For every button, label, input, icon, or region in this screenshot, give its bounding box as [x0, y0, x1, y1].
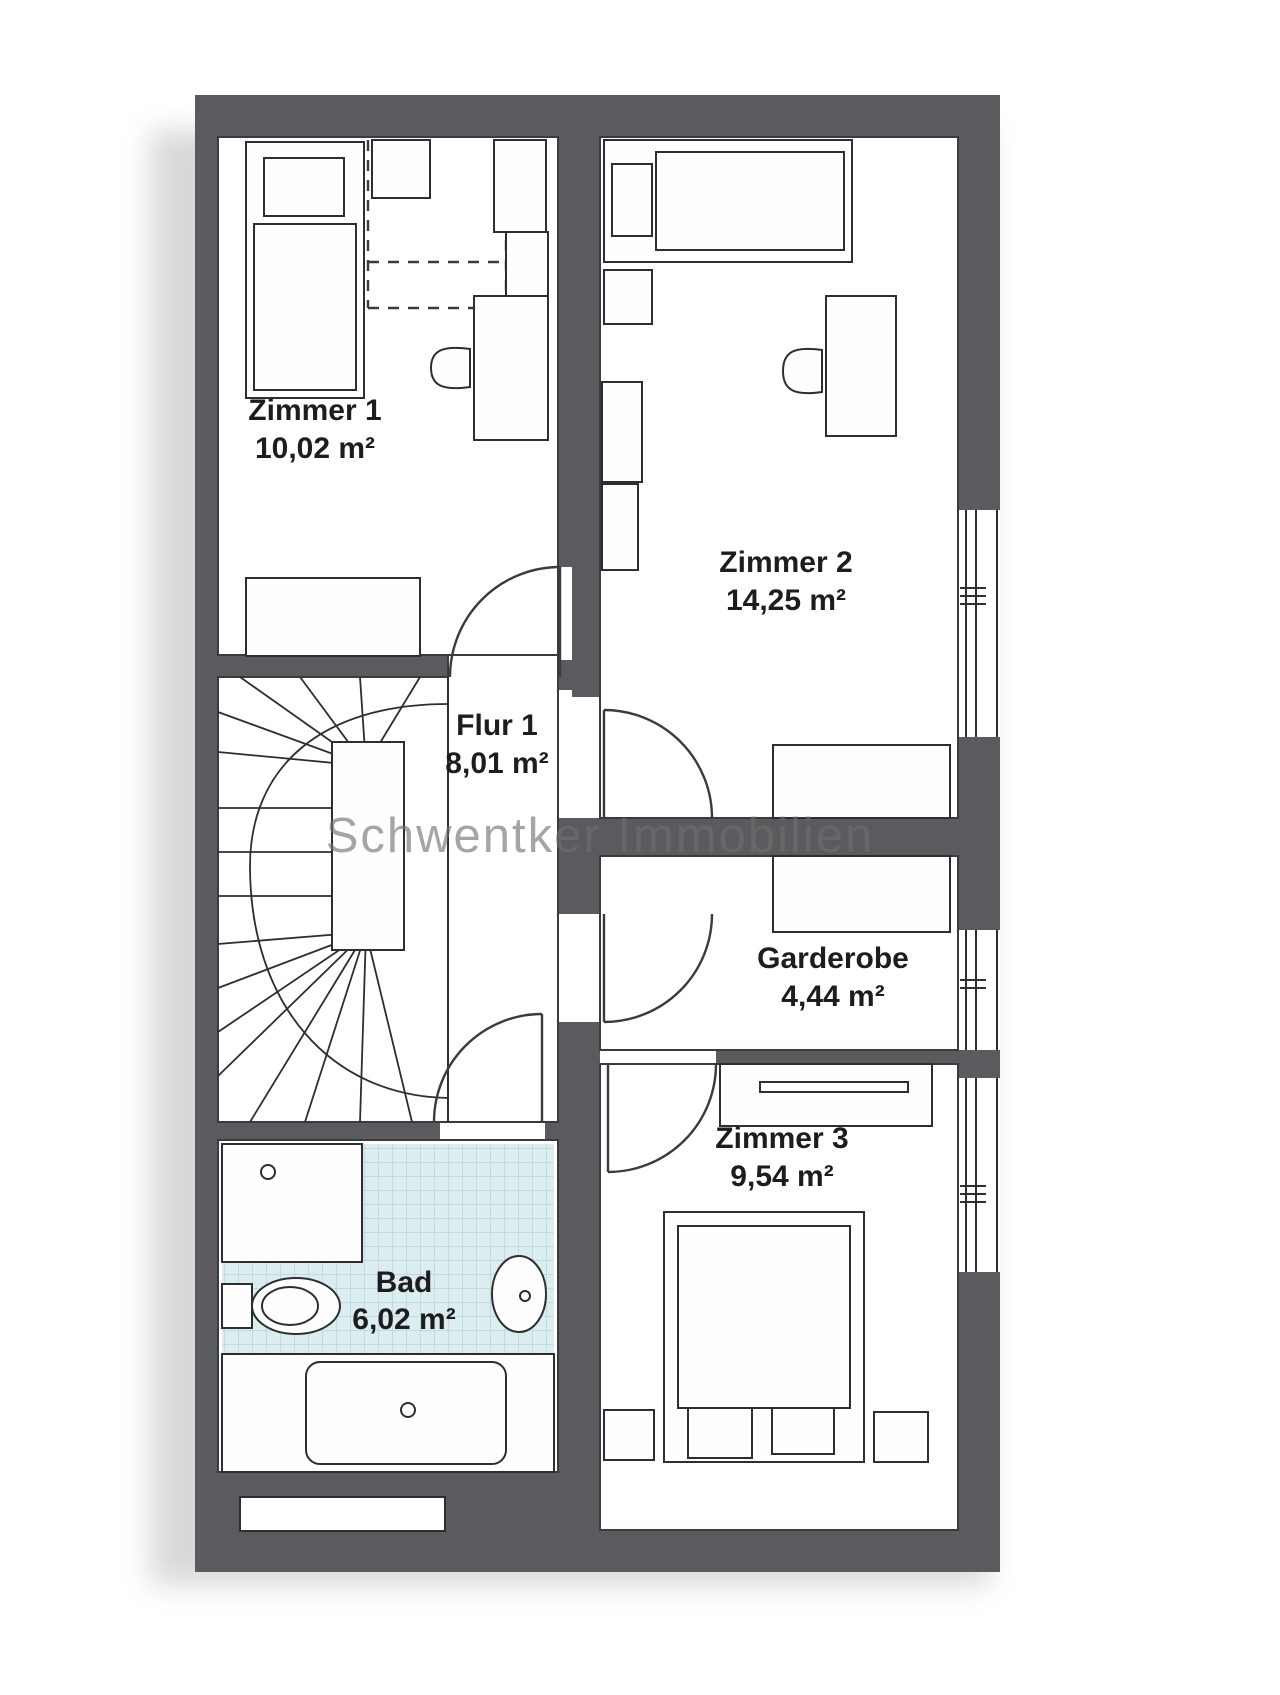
- label-zimmer2-name: Zimmer 2: [719, 546, 852, 579]
- bed-pillow-icon: [612, 164, 652, 236]
- cabinet-icon: [372, 140, 430, 198]
- wall-right-small-pier: [958, 1050, 1000, 1078]
- wall-spine-upper: [558, 137, 600, 567]
- cabinet-icon: [494, 140, 546, 232]
- bed-pillow-icon: [264, 158, 344, 216]
- wall-top: [195, 95, 1000, 137]
- bed-mattress-icon: [678, 1226, 850, 1408]
- wall-zimmer1-stairs: [218, 655, 448, 677]
- wall-right-upper: [958, 95, 1000, 510]
- desk-icon: [826, 296, 896, 436]
- chair-icon: [783, 349, 822, 393]
- wall-bad-bottom: [218, 1472, 558, 1488]
- shelf-icon: [602, 484, 638, 570]
- chair-icon: [431, 348, 470, 388]
- dresser-icon: [773, 745, 950, 818]
- wall-bad-top: [218, 1122, 440, 1140]
- sink-icon: [492, 1256, 546, 1332]
- wardrobe-icon: [773, 856, 950, 932]
- wall-bottom-right: [600, 1530, 1000, 1572]
- shower-icon: [222, 1144, 362, 1262]
- bed-pillow-icon: [772, 1408, 834, 1454]
- wall-spine-mid: [558, 856, 600, 914]
- label-flur1-area: 8,01 m²: [445, 747, 548, 780]
- cabinet-icon: [506, 232, 548, 298]
- label-zimmer3-area: 9,54 m²: [730, 1160, 833, 1193]
- wall-spine-door-jamb: [572, 567, 600, 697]
- floor-plan-page: Zimmer 1 10,02 m² Zimmer 2 14,25 m² Flur…: [0, 0, 1280, 1695]
- label-flur1-name: Flur 1: [456, 709, 538, 742]
- wall-right-lower: [958, 1272, 1000, 1572]
- label-zimmer3-name: Zimmer 3: [715, 1122, 848, 1155]
- sideboard-icon: [246, 578, 420, 656]
- wall-garderobe-zimmer3: [716, 1050, 958, 1064]
- label-bad-name: Bad: [376, 1266, 433, 1299]
- wall-spine-lower: [558, 1022, 600, 1530]
- desk-icon: [474, 296, 548, 440]
- wall-bad-top-stub: [545, 1122, 558, 1140]
- nightstand-icon: [874, 1412, 928, 1462]
- sideboard-icon: [720, 1064, 932, 1126]
- shelf-icon: [602, 382, 642, 482]
- label-zimmer1-area: 10,02 m²: [255, 432, 375, 465]
- wall-right-pier: [958, 737, 1000, 930]
- bed-mattress-icon: [656, 152, 844, 250]
- label-bad-area: 6,02 m²: [352, 1303, 455, 1336]
- label-garderobe-name: Garderobe: [757, 942, 909, 975]
- bathtub-icon: [306, 1362, 506, 1464]
- window-bottom-icon: [240, 1497, 445, 1531]
- bed-mattress-icon: [254, 224, 356, 390]
- floor-plan-canvas: Zimmer 1 10,02 m² Zimmer 2 14,25 m² Flur…: [0, 0, 1280, 1695]
- label-zimmer1-name: Zimmer 1: [248, 394, 381, 427]
- watermark-text: Schwentker Immobilien: [326, 809, 875, 863]
- bed-pillow-icon: [688, 1408, 752, 1458]
- label-garderobe-area: 4,44 m²: [781, 980, 884, 1013]
- toilet-tank-icon: [222, 1284, 252, 1328]
- label-zimmer2-area: 14,25 m²: [726, 584, 846, 617]
- shelf-icon: [604, 270, 652, 324]
- nightstand-icon: [604, 1410, 654, 1460]
